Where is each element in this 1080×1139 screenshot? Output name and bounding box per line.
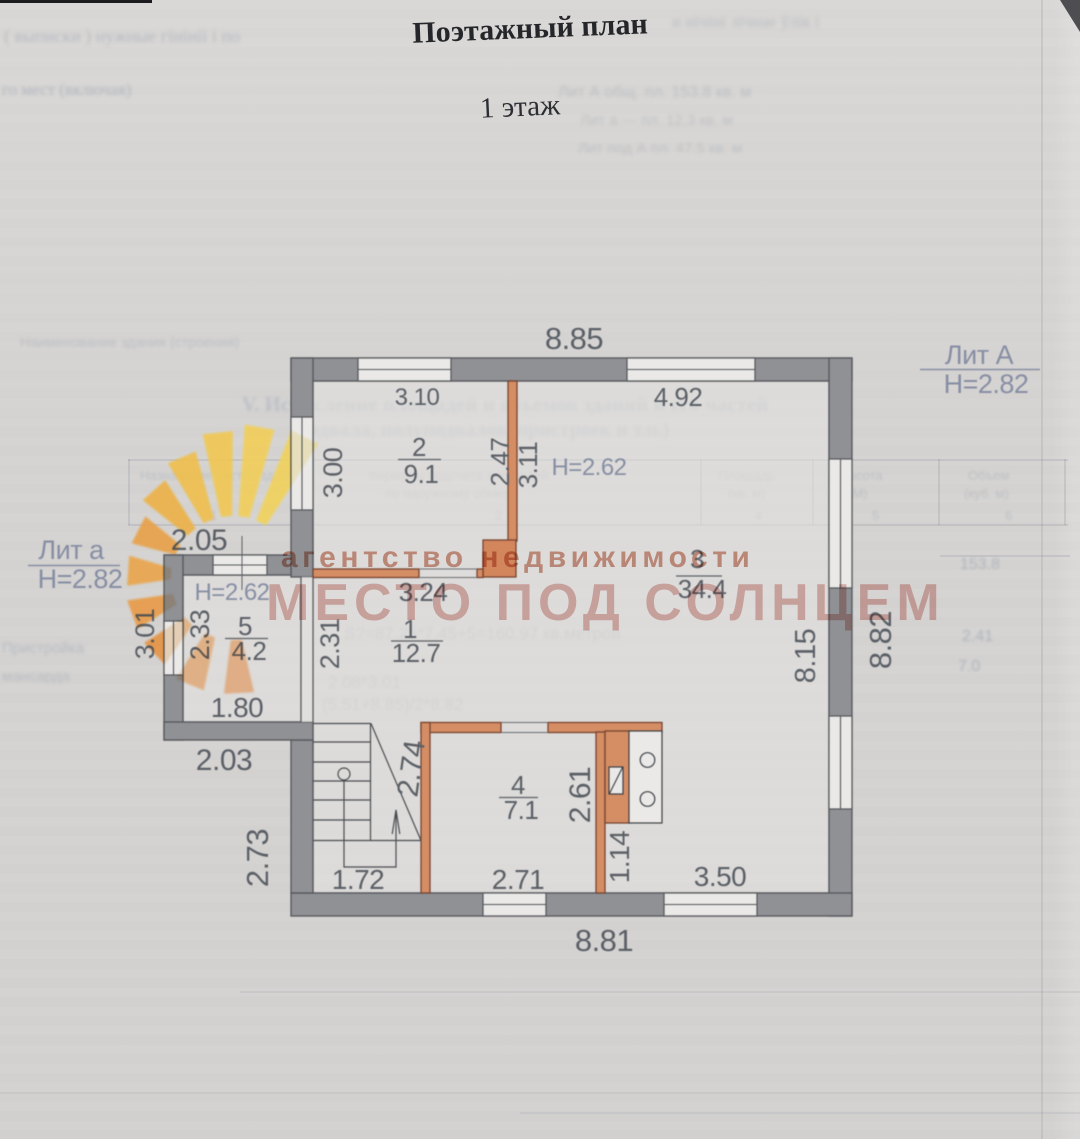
svg-text:МЕСТО ПОД СОЛНЦЕМ: МЕСТО ПОД СОЛНЦЕМ [266,574,945,632]
svg-text:агентство недвижимости: агентство недвижимости [281,541,754,574]
